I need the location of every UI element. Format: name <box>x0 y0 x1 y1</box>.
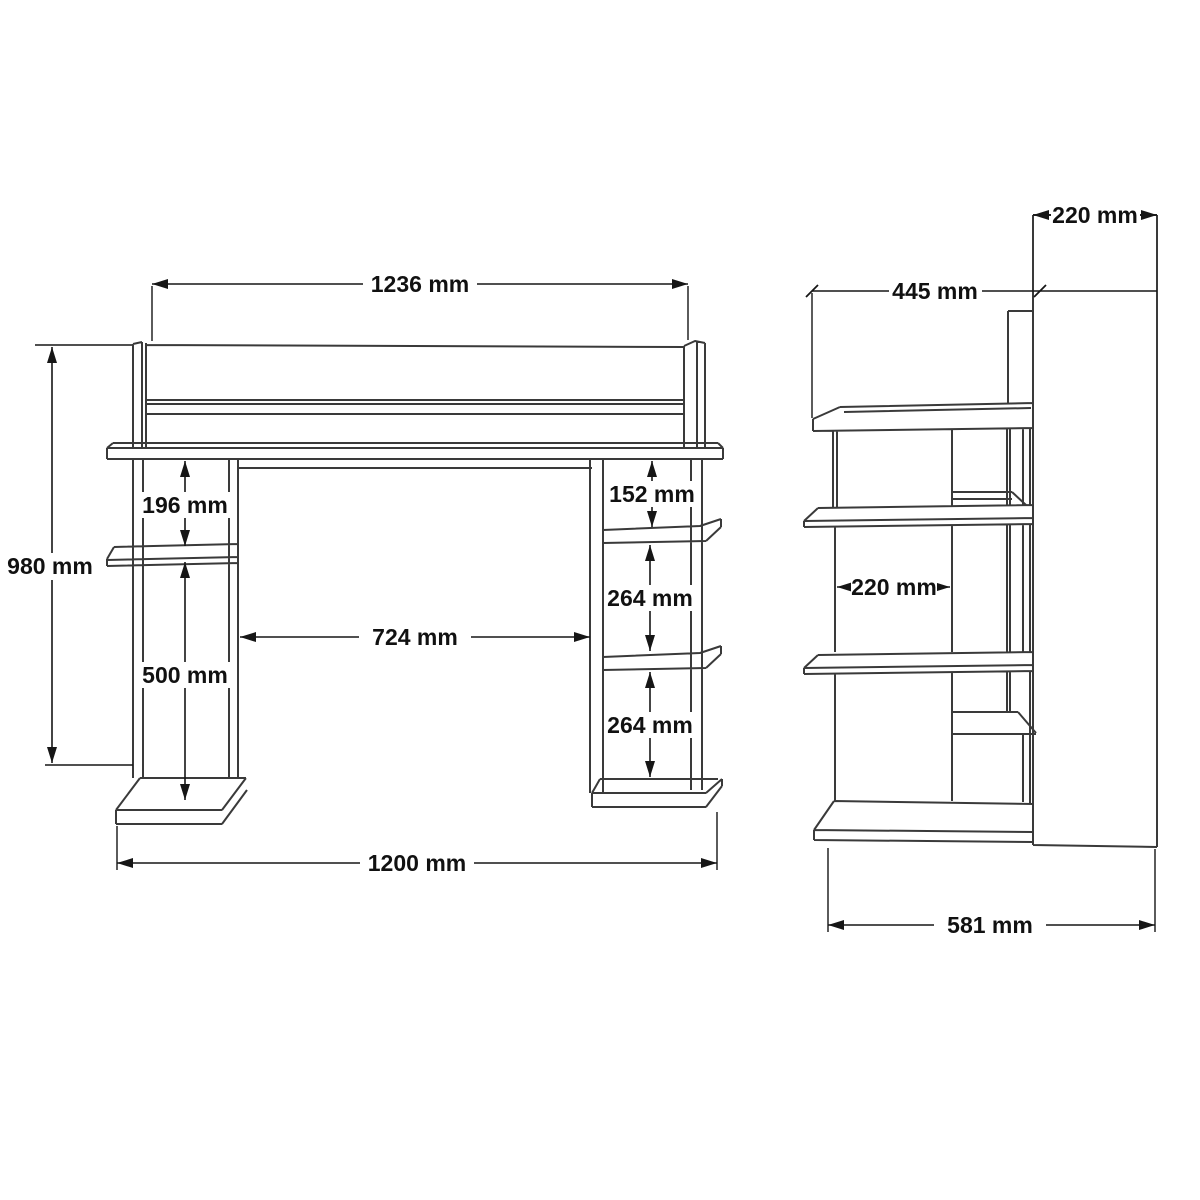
dimension-front-right-gap-mid: 264 mm <box>604 545 697 651</box>
dim-label-side-back-panel-depth: 220 mm <box>1052 202 1138 228</box>
dimension-side-total-depth: 581 mm <box>828 848 1155 939</box>
dimension-front-opening-width: 724 mm <box>240 624 590 651</box>
dim-label-front-opening-width: 724 mm <box>372 624 458 650</box>
dim-label-side-shelf-depth: 220 mm <box>851 574 937 600</box>
dimension-front-left-gap-lower: 500 mm <box>139 562 232 800</box>
side-view: 220 mm 445 mm 220 mm 581 mm <box>804 202 1157 939</box>
dimension-front-total-height: 980 mm <box>3 345 133 765</box>
dimension-side-shelf-depth: 220 mm <box>837 574 950 600</box>
dimension-front-right-gap-bottom: 264 mm <box>604 672 697 777</box>
dimension-front-left-gap-upper: 196 mm <box>139 461 232 546</box>
dim-label-front-right-gap-bottom: 264 mm <box>607 712 693 738</box>
drawing-canvas: 1236 mm 980 mm 196 mm 500 mm 152 mm <box>0 0 1200 1200</box>
technical-drawing: 1236 mm 980 mm 196 mm 500 mm 152 mm <box>0 0 1200 1200</box>
front-view: 1236 mm 980 mm 196 mm 500 mm 152 mm <box>3 271 723 877</box>
dim-label-front-total-height: 980 mm <box>7 553 93 579</box>
dim-label-side-desktop-depth: 445 mm <box>892 278 978 304</box>
dim-label-side-total-depth: 581 mm <box>947 912 1033 938</box>
dimension-side-back-panel-depth: 220 mm <box>1033 202 1157 228</box>
side-object-lines <box>804 215 1157 847</box>
dimension-front-bottom-width: 1200 mm <box>117 812 717 877</box>
dim-label-front-right-gap-top: 152 mm <box>609 481 695 507</box>
dim-label-front-left-gap-lower: 500 mm <box>142 662 228 688</box>
dimension-front-top-width: 1236 mm <box>152 271 688 341</box>
dim-label-front-left-gap-upper: 196 mm <box>142 492 228 518</box>
dimension-side-desktop-depth: 445 mm <box>806 278 1157 418</box>
dim-label-front-top-width: 1236 mm <box>371 271 469 297</box>
front-object-lines <box>107 341 723 824</box>
dim-label-front-bottom-width: 1200 mm <box>368 850 466 876</box>
dimension-front-right-gap-top: 152 mm <box>606 461 699 527</box>
dim-label-front-right-gap-mid: 264 mm <box>607 585 693 611</box>
